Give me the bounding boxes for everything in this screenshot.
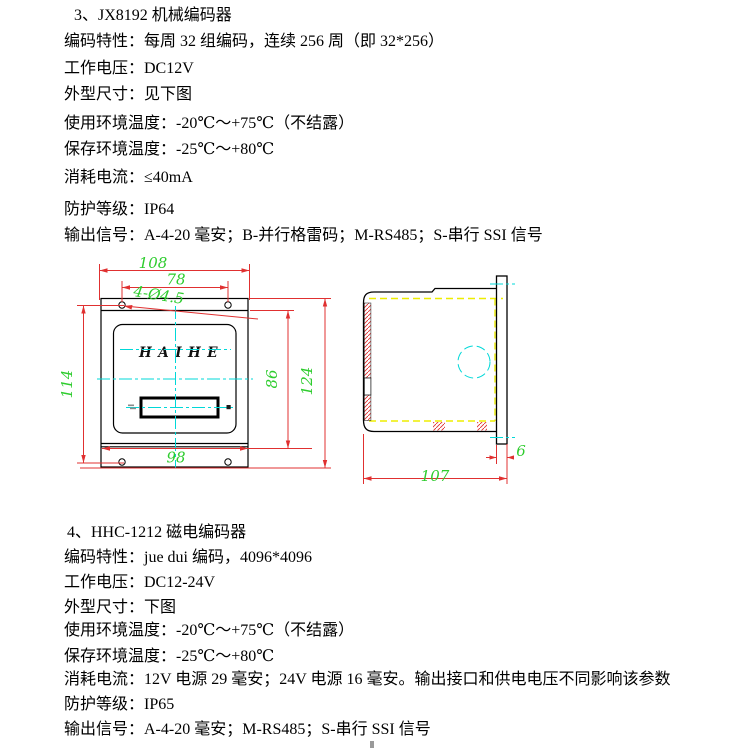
dim-bottom-width: 98 (166, 449, 185, 467)
sv-hidden-lines (369, 299, 503, 422)
sv-bottom-hatch-1 (433, 422, 445, 431)
sv-outline (364, 276, 508, 444)
sv-flange (497, 276, 508, 444)
fv-brand-text: HAIHE (138, 345, 224, 361)
spec-line-encoding-2: 编码特性：jue dui 编码，4096*4096 (64, 549, 312, 567)
spec-line-op-temp: 使用环境温度：-20℃～+75℃（不结露） (64, 115, 354, 133)
spec-line-output: 输出信号：A-4-20 毫安；B-并行格雷码；M-RS485；S-串行 SSI … (64, 227, 543, 245)
sv-hatch-areas (364, 303, 487, 431)
sv-bottom-hatch-2 (477, 422, 487, 431)
sv-body-edge (364, 292, 497, 432)
side-view: 107 6 (364, 276, 527, 485)
dimension-drawing: HAIHE (0, 250, 750, 500)
spec-line-output-2: 输出信号：A-4-20 毫安；M-RS485；S-串行 SSI 信号 (64, 721, 431, 739)
dim-flange-thickness: 6 (516, 442, 526, 460)
sv-slot (364, 378, 371, 395)
sv-hidden-outline (369, 299, 503, 422)
sv-shaft-circle (458, 346, 490, 378)
front-view: HAIHE (58, 254, 331, 468)
section3-heading: 3、JX8192 机械编码器 (74, 7, 232, 25)
dim-hole-span-v: 114 (58, 370, 76, 399)
sv-dim-6-line (486, 445, 513, 464)
dim-depth: 107 (421, 467, 450, 485)
sv-top-edge (374, 289, 497, 293)
spec-line-op-temp-2: 使用环境温度：-20℃～+75℃（不结露） (64, 622, 354, 640)
sv-front-hatch-upper (364, 303, 371, 378)
fv-flange-plate (101, 299, 248, 468)
fv-hole-leader-line (124, 306, 258, 319)
spec-line-store-temp: 保存环境温度：-25℃～+80℃ (64, 141, 274, 159)
spec-line-voltage-2: 工作电压：DC12-24V (64, 574, 215, 592)
spec-line-encoding: 编码特性：每周 32 组编码，连续 256 周（即 32*256） (64, 33, 444, 51)
section4-heading: 4、HHC-1212 磁电编码器 (67, 524, 246, 542)
sv-front-hatch-lower (364, 395, 371, 421)
spec-line-current: 消耗电流：≤40mA (64, 169, 193, 187)
fv-connector-markers (128, 405, 231, 410)
fv-body-outline (101, 299, 248, 468)
next-figure-top-fragment (370, 741, 374, 748)
dim-hole-span-h: 78 (166, 271, 185, 289)
spec-line-size-2: 外型尺寸：下图 (64, 599, 176, 617)
spec-line-ip: 防护等级：IP64 (64, 201, 174, 219)
spec-line-current-2: 消耗电流：12V 电源 29 毫安；24V 电源 16 毫安。输出接口和供电电压… (64, 671, 671, 689)
spec-line-store-temp-2: 保存环境温度：-25℃～+80℃ (64, 648, 274, 666)
sv-tab-centerlines (490, 284, 515, 438)
spec-line-voltage: 工作电压：DC12V (64, 60, 194, 78)
dim-body-height: 86 (263, 369, 281, 389)
fv-dimension-lines (77, 264, 331, 468)
spec-line-size: 外型尺寸：见下图 (64, 86, 192, 104)
spec-line-ip-2: 防护等级：IP65 (64, 696, 174, 714)
dim-outer-height: 124 (298, 367, 316, 396)
dim-top-width: 108 (139, 254, 168, 272)
